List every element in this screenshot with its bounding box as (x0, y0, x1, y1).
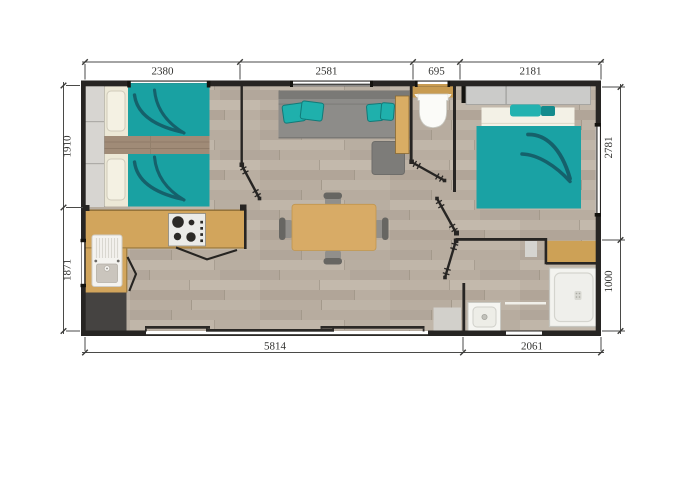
svg-text:2380: 2380 (152, 66, 175, 78)
svg-text:1000: 1000 (603, 270, 615, 293)
svg-text:2781: 2781 (603, 137, 615, 159)
svg-text:5814: 5814 (264, 341, 287, 353)
svg-text:1871: 1871 (62, 259, 74, 281)
svg-text:2061: 2061 (521, 341, 543, 353)
svg-text:2181: 2181 (520, 66, 542, 78)
svg-text:695: 695 (428, 66, 445, 78)
svg-text:1910: 1910 (62, 135, 74, 158)
svg-text:2581: 2581 (316, 66, 338, 78)
